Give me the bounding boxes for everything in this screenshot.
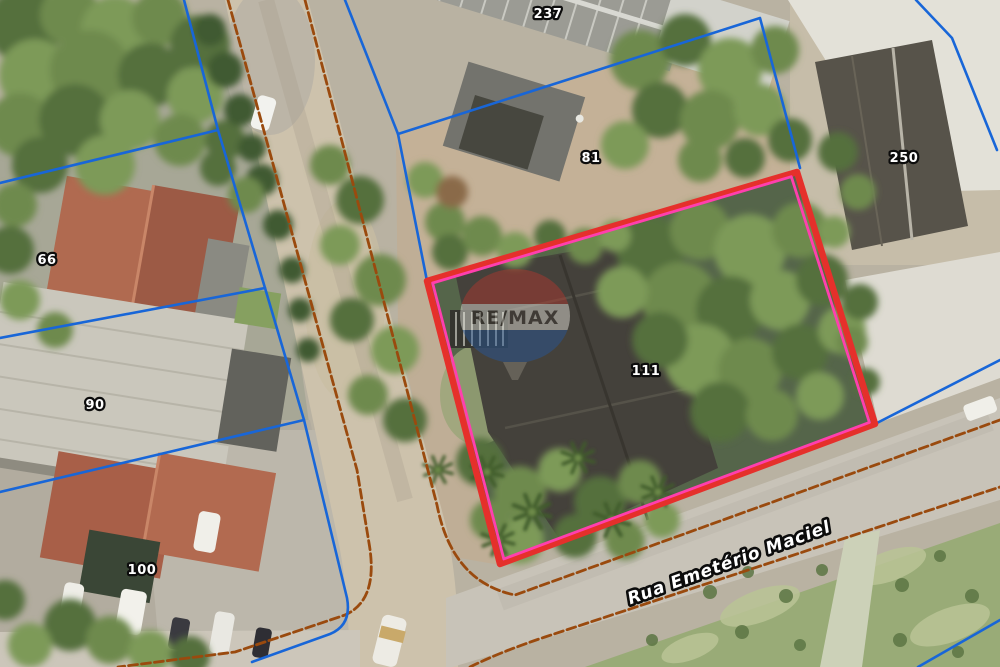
lot-label-250: 250 — [890, 151, 919, 166]
lot-label-237: 237 — [534, 7, 563, 22]
lot-label-66: 66 — [37, 253, 56, 268]
lot-label-81: 81 — [581, 151, 600, 166]
lot-label-90: 90 — [85, 398, 104, 413]
lot-label-111: 111 — [632, 364, 661, 379]
lot-label-100: 100 — [128, 563, 157, 578]
satellite-map: RE/MAX 237 81 250 66 90 100 111 Rua Emet… — [0, 0, 1000, 667]
watermark-text: RE/MAX — [471, 307, 560, 329]
